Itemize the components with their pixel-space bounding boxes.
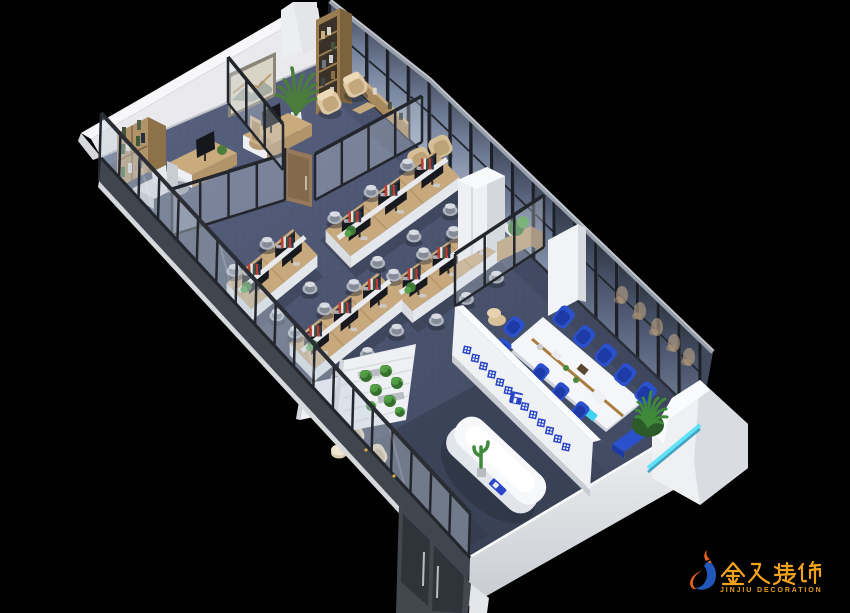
svg-text:JINJIU DECORATION: JINJIU DECORATION [720,587,823,594]
